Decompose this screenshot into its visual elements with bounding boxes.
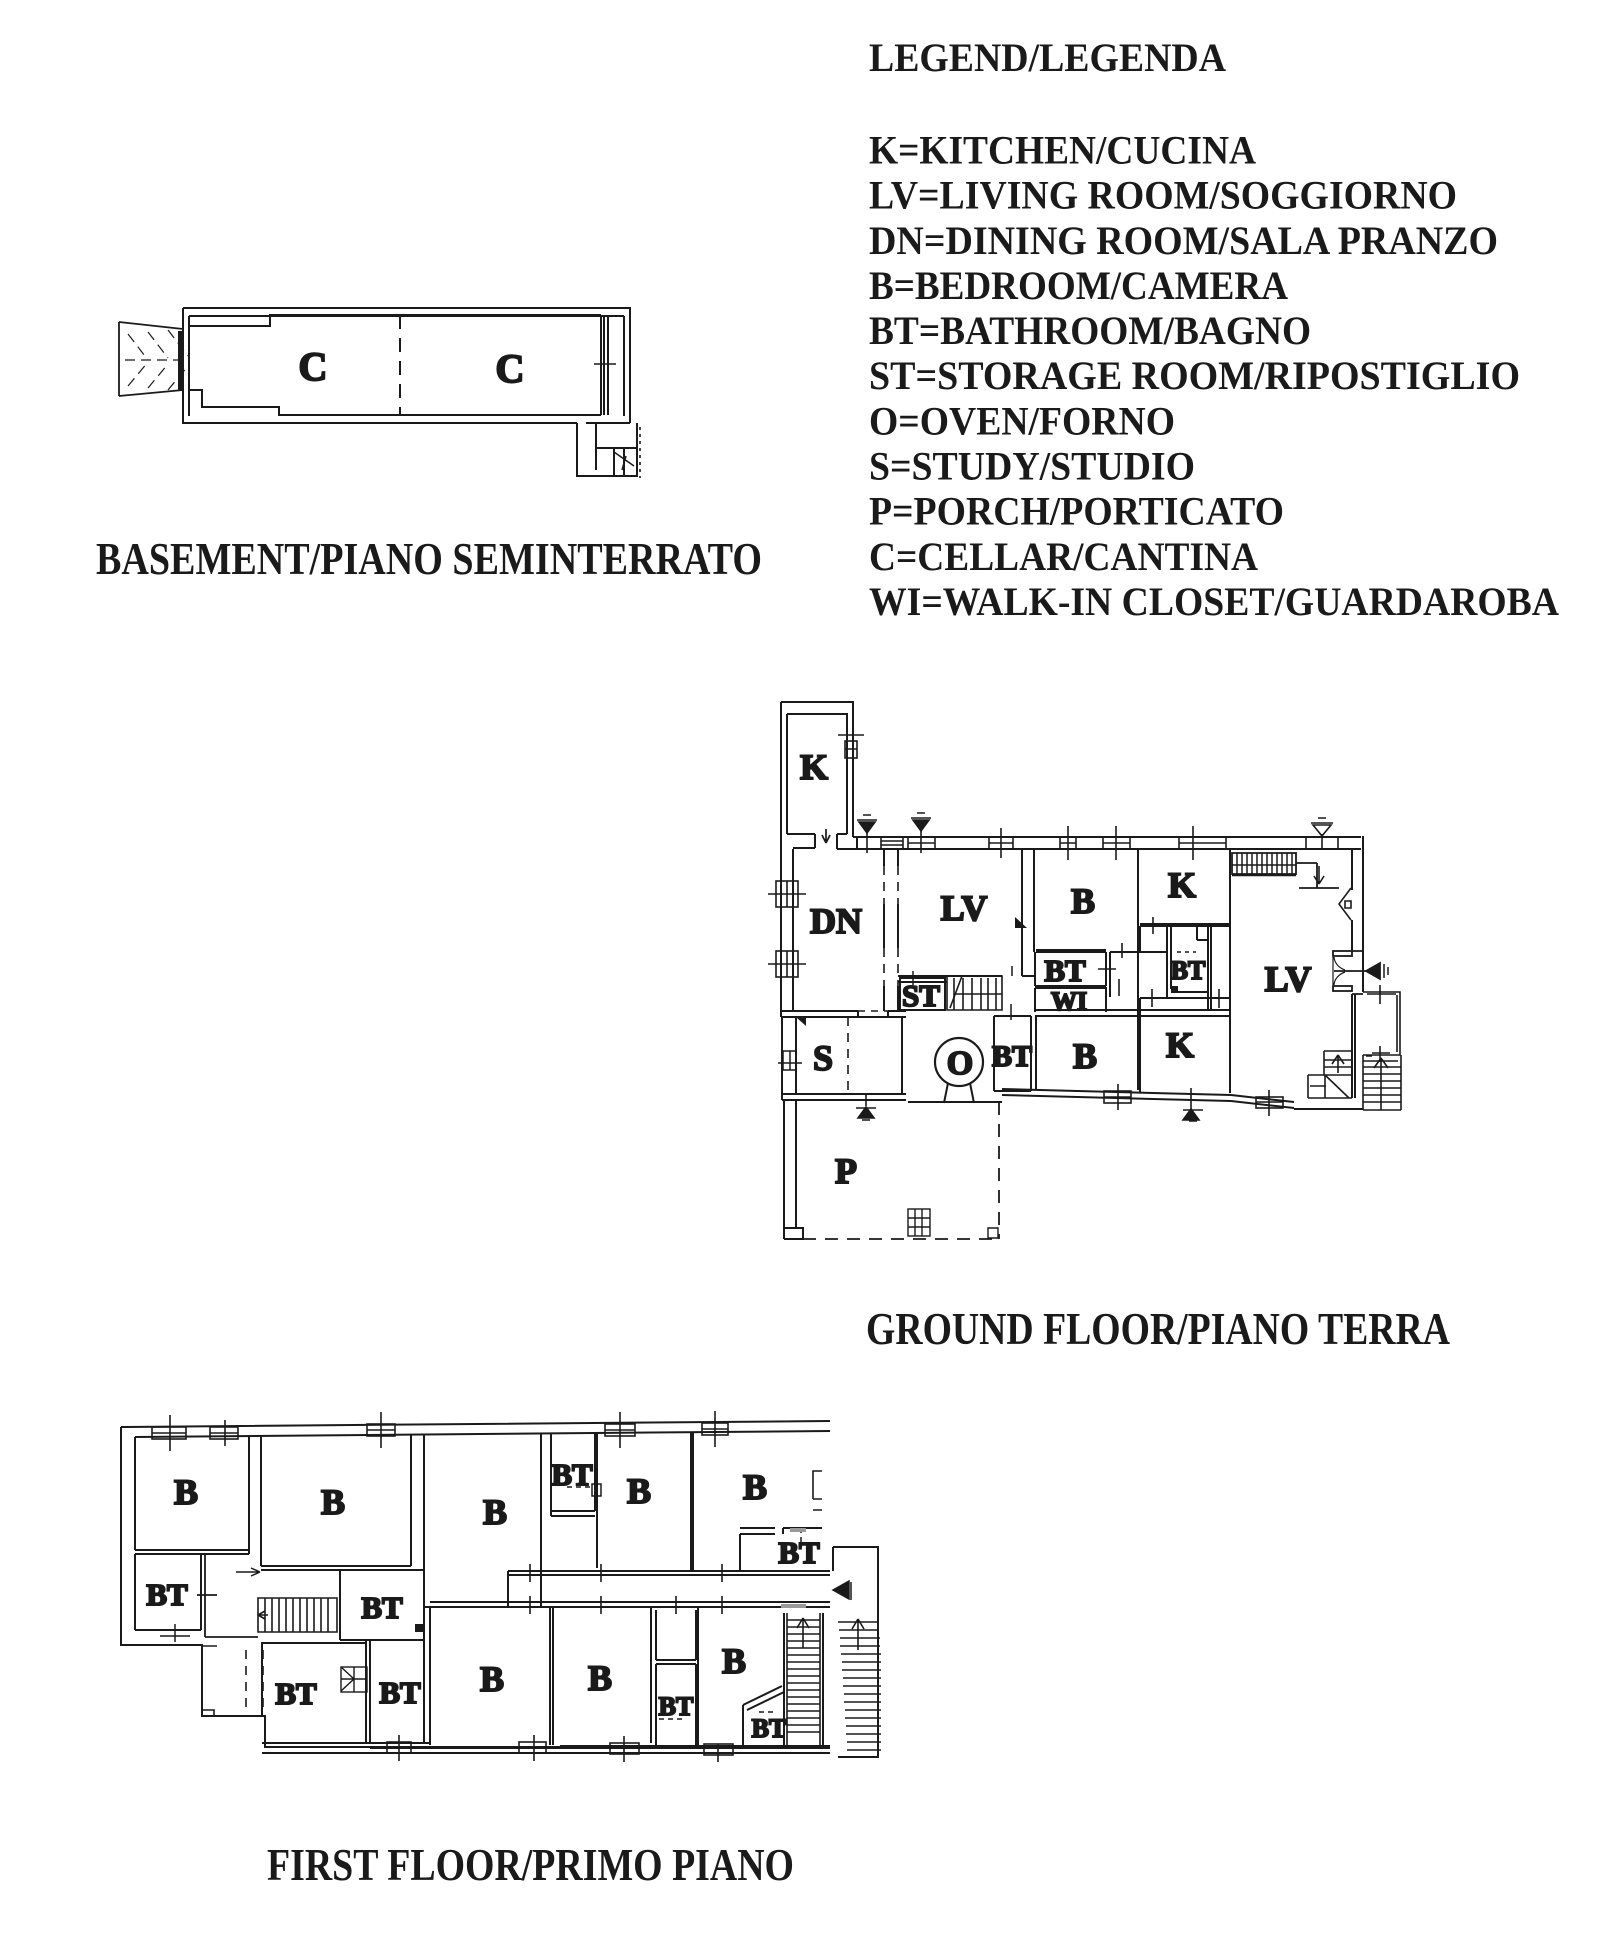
svg-text:BT: BT xyxy=(361,1590,403,1625)
svg-text:B: B xyxy=(321,1482,345,1522)
svg-text:BT: BT xyxy=(1171,956,1206,985)
svg-text:BT: BT xyxy=(659,1692,694,1721)
svg-text:C: C xyxy=(496,346,525,391)
svg-text:B: B xyxy=(480,1659,504,1699)
svg-text:BT: BT xyxy=(992,1040,1032,1073)
svg-text:BT=BATHROOM/BAGNO: BT=BATHROOM/BAGNO xyxy=(869,308,1311,353)
svg-text:LV: LV xyxy=(941,888,988,928)
svg-text:B: B xyxy=(588,1658,612,1698)
svg-text:BT: BT xyxy=(551,1457,593,1492)
svg-text:K: K xyxy=(1166,1025,1194,1065)
svg-text:BT: BT xyxy=(275,1676,317,1711)
svg-text:BT: BT xyxy=(1044,953,1086,988)
svg-text:ST: ST xyxy=(902,978,940,1013)
svg-text:B: B xyxy=(1071,881,1095,921)
svg-text:K: K xyxy=(800,747,828,787)
svg-text:C=CELLAR/CANTINA: C=CELLAR/CANTINA xyxy=(869,534,1258,579)
svg-text:GROUND FLOOR/PIANO TERRA: GROUND FLOOR/PIANO TERRA xyxy=(866,1303,1450,1354)
svg-text:WI=WALK-IN CLOSET/GUARDAROBA: WI=WALK-IN CLOSET/GUARDAROBA xyxy=(869,579,1559,624)
svg-text:BT: BT xyxy=(778,1535,820,1570)
svg-text:DN: DN xyxy=(810,901,862,941)
svg-text:ST=STORAGE ROOM/RIPOSTIGLIO: ST=STORAGE ROOM/RIPOSTIGLIO xyxy=(869,353,1520,398)
svg-text:C: C xyxy=(299,344,328,389)
svg-text:BT: BT xyxy=(146,1577,188,1612)
svg-text:K: K xyxy=(1168,865,1196,905)
svg-text:S: S xyxy=(813,1038,833,1078)
svg-text:LV: LV xyxy=(1265,959,1312,999)
svg-text:BT: BT xyxy=(379,1675,421,1710)
svg-text:P: P xyxy=(835,1151,857,1191)
svg-text:B: B xyxy=(627,1471,651,1511)
svg-text:LV=LIVING ROOM/SOGGIORNO: LV=LIVING ROOM/SOGGIORNO xyxy=(869,173,1457,218)
svg-text:B: B xyxy=(1073,1036,1097,1076)
svg-text:K=KITCHEN/CUCINA: K=KITCHEN/CUCINA xyxy=(869,128,1256,173)
svg-text:DN=DINING ROOM/SALA PRANZO: DN=DINING ROOM/SALA PRANZO xyxy=(869,218,1498,263)
svg-text:S=STUDY/STUDIO: S=STUDY/STUDIO xyxy=(869,444,1195,489)
svg-text:WI: WI xyxy=(1051,987,1087,1016)
svg-text:BASEMENT/PIANO SEMINTERRATO: BASEMENT/PIANO SEMINTERRATO xyxy=(96,533,762,584)
svg-text:LEGEND/LEGENDA: LEGEND/LEGENDA xyxy=(869,35,1226,80)
svg-text:B: B xyxy=(483,1492,507,1532)
svg-text:B: B xyxy=(722,1641,746,1681)
svg-text:B: B xyxy=(743,1467,767,1507)
svg-text:O=OVEN/FORNO: O=OVEN/FORNO xyxy=(869,398,1175,443)
svg-text:O: O xyxy=(947,1045,973,1082)
svg-text:B=BEDROOM/CAMERA: B=BEDROOM/CAMERA xyxy=(869,263,1288,308)
svg-text:P=PORCH/PORTICATO: P=PORCH/PORTICATO xyxy=(869,489,1284,534)
svg-text:B: B xyxy=(174,1472,198,1512)
svg-text:BT: BT xyxy=(752,1714,787,1743)
svg-text:FIRST FLOOR/PRIMO PIANO: FIRST FLOOR/PRIMO PIANO xyxy=(267,1839,794,1890)
